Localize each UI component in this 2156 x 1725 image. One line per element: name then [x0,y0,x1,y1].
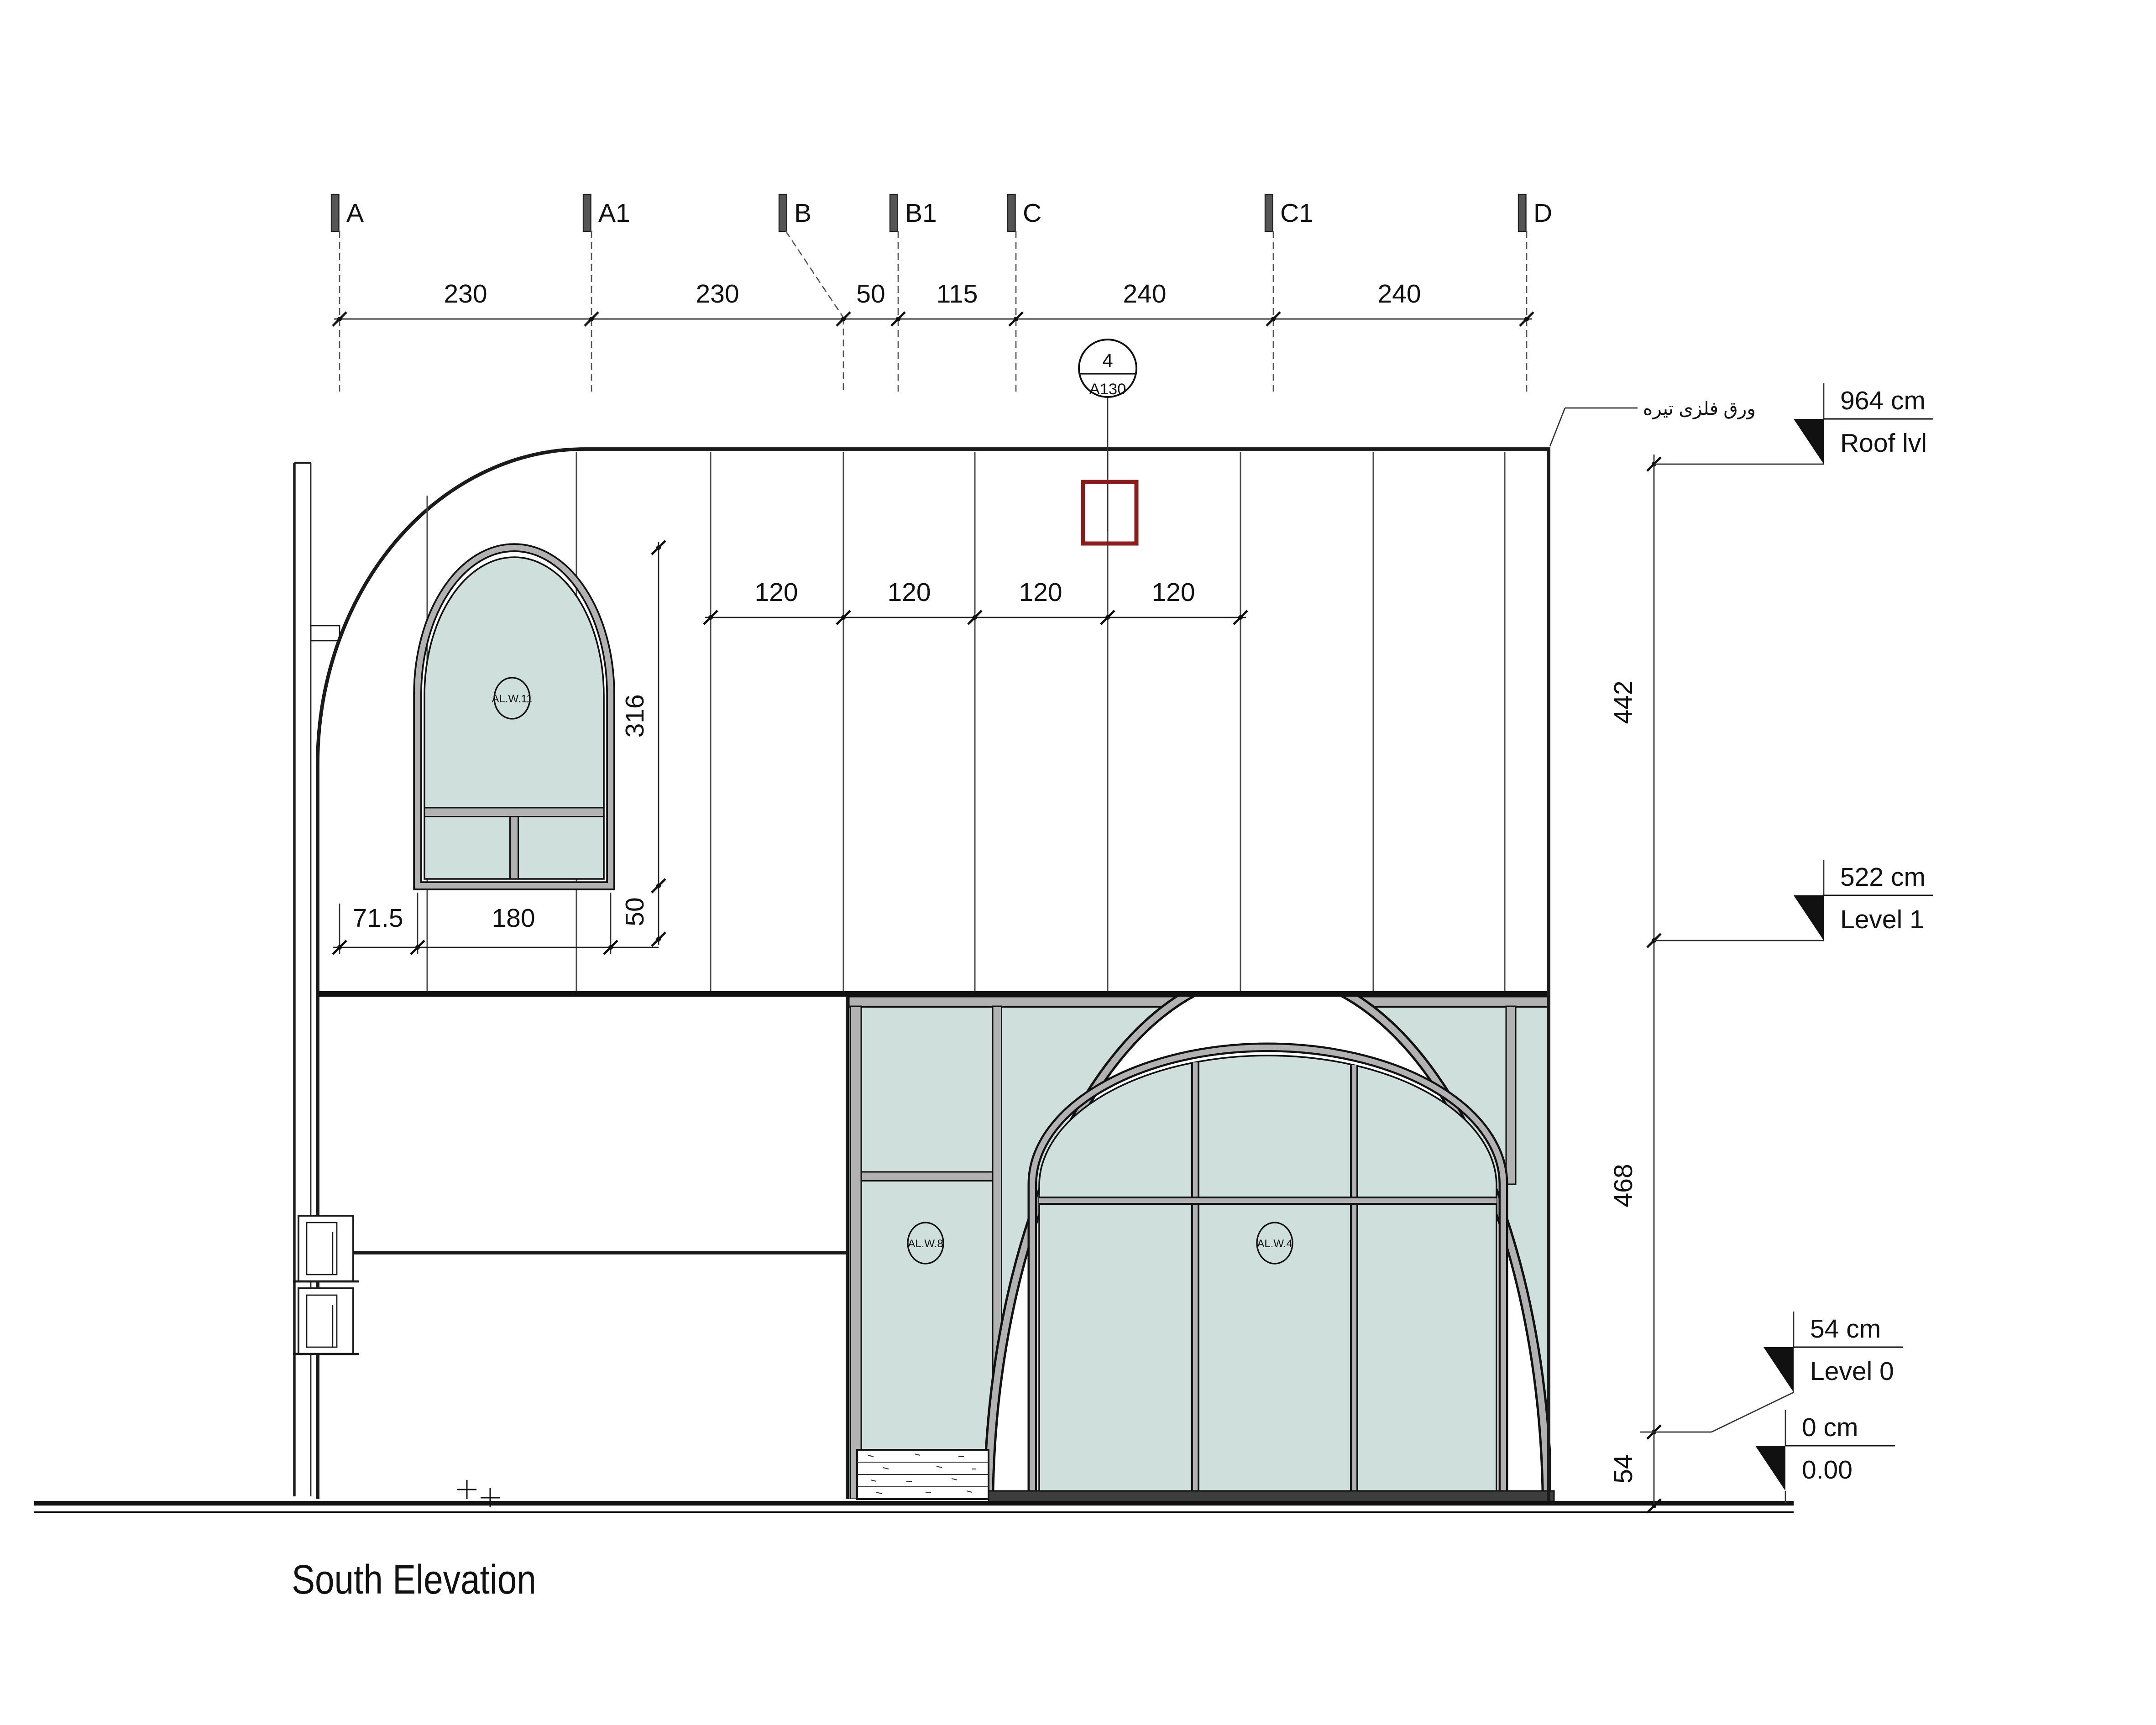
callout-number: 4 [1102,350,1113,371]
grid-label: C1 [1280,199,1313,228]
grid-marker-C1: C1 [1265,194,1313,231]
section-callout: 4 A130 [1079,340,1136,544]
grid-marker-C: C [1008,194,1041,231]
level-name: Level 1 [1840,905,1924,934]
grid-dim: 240 [1377,279,1421,308]
upper-window-alw11: AL.W.11 [418,548,611,886]
grid-marker-D: D [1518,194,1552,231]
dim-roof-to-l1: 442 [1609,680,1638,724]
panel-dim: 120 [754,578,798,607]
level-value: 964 cm [1840,386,1926,415]
grid-dim: 115 [937,279,978,308]
dim-window-sill: 50 [620,897,649,926]
level-name: Roof lvl [1840,429,1927,458]
fixture-unit-upper [293,1216,359,1281]
south-elevation-canvas: AL.W.8 AL.W.4 [0,0,2156,1725]
dim-window-height: 316 [620,694,649,737]
arch-window-glazing [1039,1056,1497,1499]
level-name: 0.00 [1802,1455,1852,1485]
dim-l0-to-ground: 54 [1609,1454,1638,1483]
tag-label: AL.W.4 [1257,1238,1292,1250]
material-note: ورق فلزی تیره [1550,398,1756,446]
panel-dim: 120 [1151,578,1195,607]
level1-floor-band [318,991,1549,997]
level-flag-triangle [1764,1347,1794,1392]
grid-dim: 230 [696,279,739,308]
grid-dim: 230 [444,279,487,308]
level-flag-triangle [1755,1446,1785,1491]
callout-extent-box [1083,482,1136,544]
panel-dim: 120 [887,578,931,607]
dim-window-offset: 71.5 [353,904,403,933]
wall-bracket [311,626,340,641]
grid-dim: 240 [1123,279,1166,308]
material-note-text: ورق فلزی تیره [1643,398,1756,420]
callout-sheet: A130 [1089,381,1126,398]
fixture-unit-lower [293,1288,359,1354]
grid-label: A1 [598,199,630,228]
grid-dimension-chain: 230 230 50 115 240 240 [333,279,1533,326]
upper-window-transom [424,808,604,817]
storefront-left-transom [861,1172,993,1181]
storefront-right-frame [1506,1006,1516,1184]
tag-label: AL.W.8 [908,1238,943,1250]
grid-label: C [1023,199,1041,228]
drawing-title: South Elevation [292,1556,536,1602]
tag-label: AL.W.11 [492,693,533,705]
grid-dim: 50 [856,279,885,308]
grid-marker-B1: B1 [890,194,937,231]
level-value: 522 cm [1840,862,1926,892]
level-flag-triangle [1794,419,1824,464]
upper-window-mullion [510,817,518,879]
dim-window-width: 180 [492,904,535,933]
elevation-drawing-sheet: AL.W.8 AL.W.4 [0,0,2156,1725]
storefront: AL.W.8 AL.W.4 [849,972,1549,1725]
storefront-left-jamb [850,1006,861,1499]
ground-line [34,1503,1794,1512]
panel-dim: 120 [1019,578,1062,607]
grid-label: D [1533,199,1552,228]
level-value: 54 cm [1810,1314,1881,1343]
level-value: 0 cm [1802,1413,1858,1442]
building-lower-left-wall [318,997,848,1499]
brick-threshold [857,1450,989,1499]
grid-marker-A: A [331,194,364,231]
grid-label: B1 [905,199,937,228]
dim-l1-to-l0: 468 [1609,1164,1638,1207]
grid-label: A [346,199,364,228]
grid-system: A A1 B B1 C C1 D [331,194,1552,393]
level-flag-zero: 0 cm 0.00 [1755,1410,1895,1503]
level-name: Level 0 [1810,1357,1894,1386]
grid-marker-A1: A1 [583,194,630,231]
level-flag-roof: 964 cm Roof lvl [1794,383,1933,464]
grid-label: B [794,199,811,228]
grid-marker-B: B [779,194,811,231]
wall-fixtures [293,1216,359,1354]
grid-drop-lines [340,231,1527,393]
arch-window-alw4 [1032,1047,1503,1503]
level-flag-triangle [1794,895,1824,941]
level-flag-level1: 522 cm Level 1 [1794,860,1933,941]
